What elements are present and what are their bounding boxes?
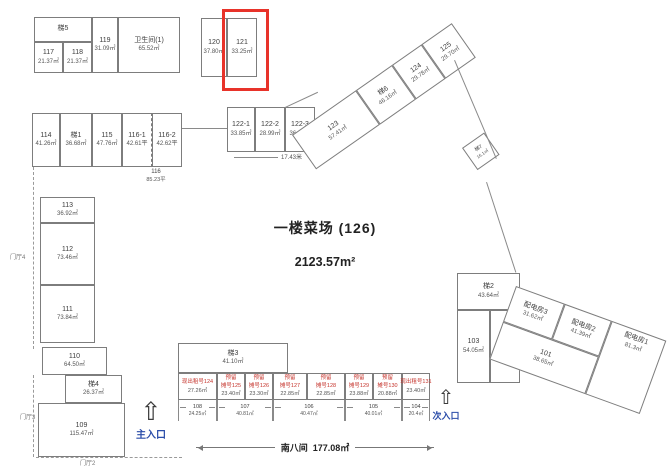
stall-131: 现出租号13123.40㎡ <box>402 373 430 400</box>
stair-1-area: 36.68㎡ <box>65 141 86 148</box>
room-112-area: 73.46㎡ <box>57 255 78 262</box>
stall-129-line2: 摊号129 <box>349 383 369 390</box>
dim-104-id: 104 <box>411 404 420 411</box>
dim-17m: 17.43米 <box>281 152 302 161</box>
stall-126-area: 23.30㎡ <box>249 391 268 398</box>
stall-125-area: 23.40㎡ <box>221 391 240 398</box>
stall-128-line1: 预留 <box>320 375 331 382</box>
room-109: 109115.47㎡ <box>38 403 125 457</box>
stall-124-area: 27.26㎡ <box>188 388 207 395</box>
dim-105: 10540.01㎡ <box>345 400 402 421</box>
room-117-area: 21.37㎡ <box>38 59 59 66</box>
main-entrance: ⇧ 主入口 <box>128 399 174 441</box>
room-113: 11336.92㎡ <box>40 197 95 223</box>
main-entrance-label: 主入口 <box>128 426 174 441</box>
dim-106-id: 106 <box>304 404 313 411</box>
stall-129-line1: 预留 <box>353 375 364 382</box>
room-119-id: 119 <box>99 37 110 46</box>
room-119: 11931.09㎡ <box>92 17 118 73</box>
room-122-2-area: 28.99㎡ <box>259 131 280 138</box>
stall-127-line2: 摊号127 <box>280 383 300 390</box>
wall-line <box>33 167 34 349</box>
wall-line <box>36 457 182 458</box>
room-112: 11273.46㎡ <box>40 223 95 285</box>
room-103: 10354.05㎡ <box>457 310 490 383</box>
room-103-area: 54.05㎡ <box>463 348 484 355</box>
wall-line <box>285 92 318 108</box>
stair-5-id: 梯5 <box>58 25 69 34</box>
dim-116-area: 85.23平 <box>124 177 188 184</box>
room-110-area: 64.50㎡ <box>64 362 85 369</box>
room-115: 11547.76㎡ <box>92 113 122 167</box>
band-northeast: 12357.41㎡梯646.16㎡12429.78㎡12529.70㎡ <box>292 23 476 169</box>
room-117-id: 117 <box>43 49 54 58</box>
room-115-id: 115 <box>101 132 112 141</box>
lobby-4-label: 门厅4 <box>10 252 25 261</box>
room-110: 11064.50㎡ <box>42 347 107 375</box>
room-110-id: 110 <box>69 353 80 362</box>
stall-124-line1: 现出租号124 <box>182 379 213 386</box>
room-122-1-id: 122-1 <box>232 121 250 130</box>
toilet-1-area: 65.52㎡ <box>138 46 159 53</box>
dim-108-id: 108 <box>193 404 202 411</box>
room-112-id: 112 <box>62 246 73 255</box>
stall-125-line2: 摊号125 <box>221 383 241 390</box>
room-109-area: 115.47㎡ <box>70 431 94 438</box>
stall-131-line1: 现出租号131 <box>400 379 431 386</box>
dim-106: 10640.47㎡ <box>273 400 345 421</box>
stair-3-area: 41.10㎡ <box>222 359 243 366</box>
dim-106-area: 40.47㎡ <box>300 411 318 417</box>
room-120-id: 120 <box>208 39 220 48</box>
up-arrow-icon: ⇧ <box>426 387 466 407</box>
stair-3: 梯341.10㎡ <box>178 343 288 373</box>
stair-4-area: 26.37㎡ <box>83 390 104 397</box>
room-116-1-area: 42.61平 <box>126 141 147 148</box>
room-116-1: 116-142.61平 <box>122 113 152 167</box>
room-116-2: 116-242.62平 <box>152 113 182 167</box>
stall-126: 预留摊号12623.30㎡ <box>245 373 273 400</box>
wall-line <box>486 182 516 273</box>
dim-116: 116 85.23平 <box>124 169 188 183</box>
stall-131-area: 23.40㎡ <box>406 388 425 395</box>
south-dimension-text: 南八间 177.08㎡ <box>281 441 350 454</box>
band-southeast: 配电房331.62㎡配电房241.39㎡配电房181.3㎡10138.65㎡ <box>489 286 666 414</box>
room-122-1: 122-133.85㎡ <box>227 107 255 152</box>
wall-line <box>182 128 227 129</box>
stall-125: 预留摊号12523.40㎡ <box>217 373 245 400</box>
stall-126-line2: 摊号126 <box>249 383 269 390</box>
stall-130-line2: 摊号130 <box>377 383 397 390</box>
room-118: 11821.37㎡ <box>63 42 92 73</box>
room-111-id: 111 <box>62 306 73 315</box>
room-113-id: 113 <box>62 202 73 211</box>
dimension-line <box>196 447 275 448</box>
dim-107-area: 40.81㎡ <box>236 411 254 417</box>
wall-line <box>33 375 34 457</box>
room-111-area: 73.84㎡ <box>57 315 78 322</box>
dim-104-area: 20.4㎡ <box>409 411 424 417</box>
room-116-1-id: 116-1 <box>128 132 145 141</box>
wall-line <box>234 157 278 158</box>
highlight-box <box>222 9 269 91</box>
stall-129: 预留摊号12923.88㎡ <box>345 373 373 400</box>
south-dimension: 南八间 177.08㎡ <box>196 441 434 454</box>
dim-108: 10824.25㎡ <box>178 400 217 421</box>
stair-2-id: 梯2 <box>483 283 494 292</box>
stair-2-area: 43.64㎡ <box>478 293 499 300</box>
stair-1-id: 梯1 <box>71 132 82 141</box>
stair-4-id: 梯4 <box>88 381 99 390</box>
room-116-2-area: 42.62平 <box>156 141 177 148</box>
stall-127-line1: 预留 <box>284 375 295 382</box>
secondary-entrance: ⇧ 次入口 <box>426 387 466 422</box>
stall-130: 预留摊号13020.88㎡ <box>373 373 402 400</box>
room-119-area: 31.09㎡ <box>94 46 115 53</box>
dim-108-area: 24.25㎡ <box>189 411 207 417</box>
room-109-id: 109 <box>76 422 88 431</box>
stall-124: 现出租号12427.26㎡ <box>178 373 217 400</box>
stall-127-area: 22.85㎡ <box>280 391 299 398</box>
market-title-block: 一楼菜场 (126) 2123.57m² <box>240 218 410 269</box>
stall-130-line1: 预留 <box>382 375 393 382</box>
south-units-dimension-row: 10824.25㎡10740.81㎡10640.47㎡10540.01㎡1042… <box>178 400 430 421</box>
stall-129-area: 23.88㎡ <box>349 391 368 398</box>
room-114-area: 41.26㎡ <box>35 141 56 148</box>
stair-1: 梯136.68㎡ <box>60 113 92 167</box>
dim-107-id: 107 <box>240 404 249 411</box>
south-dimension-label: 南八间 <box>281 443 308 453</box>
dim-105-id: 105 <box>369 404 378 411</box>
dim-107: 10740.81㎡ <box>217 400 273 421</box>
room-111: 11173.84㎡ <box>40 285 95 343</box>
stall-125-line1: 预留 <box>225 375 236 382</box>
south-dimension-area: 177.08㎡ <box>313 443 350 453</box>
room-113-area: 36.92㎡ <box>57 211 78 218</box>
room-122-2: 122-228.99㎡ <box>255 107 285 152</box>
room-122-2-id: 122-2 <box>261 121 279 130</box>
stair-5: 梯5 <box>34 17 92 42</box>
dimension-line <box>355 447 434 448</box>
market-area: 2123.57m² <box>240 255 410 269</box>
secondary-entrance-label: 次入口 <box>426 409 466 422</box>
room-117: 11721.37㎡ <box>34 42 63 73</box>
room-114: 11441.26㎡ <box>32 113 60 167</box>
dim-116-id: 116 <box>124 169 188 177</box>
room-115-area: 47.76㎡ <box>96 141 117 148</box>
stall-128-area: 22.85㎡ <box>316 391 335 398</box>
dim-104: 10420.4㎡ <box>402 400 430 421</box>
toilet-1-id: 卫生间(1) <box>134 37 164 46</box>
room-118-id: 118 <box>72 49 83 58</box>
room-118-area: 21.37㎡ <box>67 59 88 66</box>
floor-plan: 一楼菜场 (126) 2123.57m² ⇧ 主入口 ⇧ 次入口 门厅4 门厅3… <box>0 0 670 473</box>
up-arrow-icon: ⇧ <box>128 399 174 424</box>
room-103-id: 103 <box>468 338 480 347</box>
stall-130-area: 20.88㎡ <box>378 391 397 398</box>
room-122-1-area: 33.85㎡ <box>230 131 251 138</box>
stair-4: 梯426.37㎡ <box>65 375 122 403</box>
stall-127: 预留摊号12722.85㎡ <box>273 373 307 400</box>
toilet-1: 卫生间(1)65.52㎡ <box>118 17 180 73</box>
room-116-2-id: 116-2 <box>158 132 175 141</box>
lobby-2-label: 门厅2 <box>80 458 95 467</box>
stair-3-id: 梯3 <box>228 350 239 359</box>
dim-105-area: 40.01㎡ <box>365 411 383 417</box>
stall-126-line1: 预留 <box>253 375 264 382</box>
stall-128: 预留摊号12822.85㎡ <box>307 373 345 400</box>
stall-128-line2: 摊号128 <box>316 383 336 390</box>
market-title: 一楼菜场 (126) <box>240 218 410 238</box>
room-114-id: 114 <box>40 132 51 141</box>
